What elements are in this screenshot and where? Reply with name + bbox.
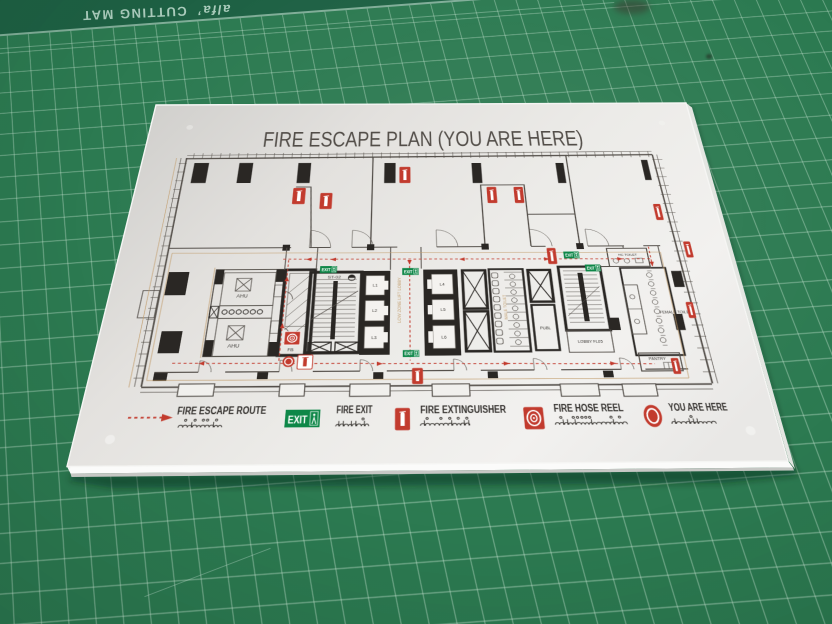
- svg-text:AHU: AHU: [236, 293, 248, 299]
- svg-text:L1: L1: [373, 283, 378, 288]
- svg-text:EXIT: EXIT: [404, 350, 413, 356]
- svg-text:MALE TOILET: MALE TOILET: [502, 295, 510, 320]
- svg-text:L6: L6: [441, 335, 447, 340]
- svg-text:L5: L5: [441, 308, 446, 313]
- svg-text:EXIT: EXIT: [287, 413, 308, 426]
- svg-text:YOU ARE HERE: YOU ARE HERE: [667, 401, 728, 414]
- svg-text:EXIT: EXIT: [404, 269, 413, 275]
- svg-text:EXIT: EXIT: [586, 265, 595, 271]
- svg-text:L4: L4: [440, 282, 445, 287]
- svg-text:HC TOILET: HC TOILET: [618, 252, 638, 256]
- svg-text:FIRE HOSE REEL: FIRE HOSE REEL: [553, 401, 625, 414]
- svg-text:PANTRY: PANTRY: [648, 356, 666, 361]
- svg-text:L2: L2: [372, 309, 377, 314]
- svg-text:FIRE EXIT: FIRE EXIT: [336, 403, 373, 416]
- svg-text:ST-02: ST-02: [328, 275, 342, 280]
- svg-text:EXIT: EXIT: [321, 267, 330, 273]
- svg-text:LOBBY FL05: LOBBY FL05: [578, 339, 604, 344]
- svg-text:LOW ZONE LIFT LOBBY: LOW ZONE LIFT LOBBY: [397, 277, 403, 323]
- svg-text:FIRE ESCAPE PLAN (YOU ARE HERE: FIRE ESCAPE PLAN (YOU ARE HERE): [261, 127, 585, 152]
- svg-text:L3: L3: [371, 335, 377, 340]
- svg-text:FIRE EXTINGUISHER: FIRE EXTINGUISHER: [420, 403, 507, 416]
- svg-text:PUBL: PUBL: [540, 326, 552, 331]
- svg-text:FB: FB: [287, 347, 295, 352]
- svg-text:FIRE ESCAPE ROUTE: FIRE ESCAPE ROUTE: [176, 404, 267, 417]
- svg-text:AHU: AHU: [227, 342, 240, 348]
- svg-text:EXIT: EXIT: [565, 252, 574, 257]
